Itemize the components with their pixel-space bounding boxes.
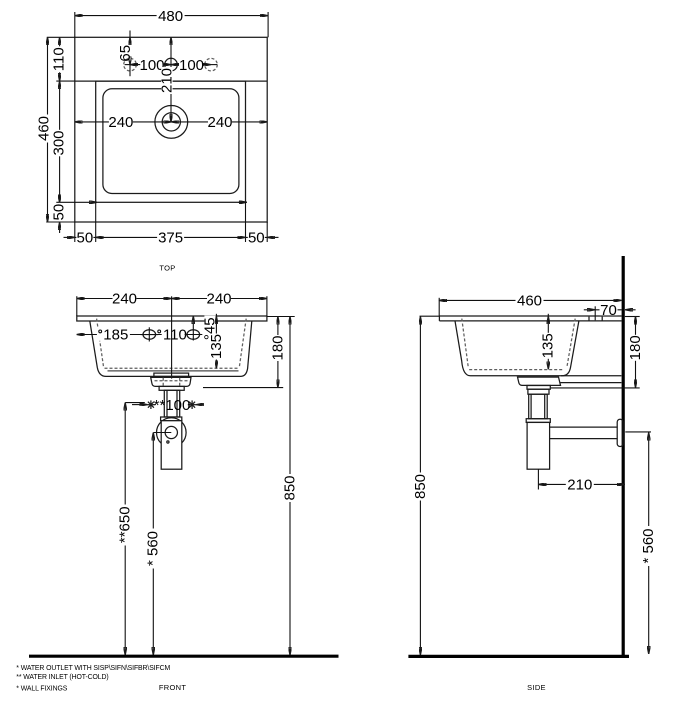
svg-text:* 560: * 560	[640, 528, 657, 563]
svg-text:SIDE: SIDE	[527, 683, 546, 692]
svg-text:460: 460	[517, 293, 542, 310]
svg-text:135: 135	[540, 333, 557, 358]
svg-text:**100: **100	[154, 397, 191, 414]
svg-text:* WALL FIXINGS: * WALL FIXINGS	[16, 686, 67, 693]
svg-text:180: 180	[627, 335, 644, 360]
svg-text:50: 50	[248, 230, 265, 247]
svg-text:TOP: TOP	[159, 264, 175, 273]
svg-text:50: 50	[50, 204, 67, 221]
svg-text:240: 240	[108, 114, 133, 131]
svg-text:70: 70	[600, 302, 617, 319]
svg-text:210: 210	[158, 68, 175, 93]
svg-text:* 560: * 560	[145, 531, 162, 566]
svg-text:FRONT: FRONT	[159, 683, 186, 692]
svg-text:135: 135	[208, 334, 225, 359]
svg-text:300: 300	[50, 130, 67, 155]
svg-text:50: 50	[77, 230, 94, 247]
svg-text:240: 240	[206, 291, 231, 308]
svg-text:100: 100	[179, 57, 204, 74]
svg-text:480: 480	[158, 8, 183, 25]
svg-text:240: 240	[207, 114, 232, 131]
svg-text:180: 180	[269, 335, 286, 360]
svg-text:850: 850	[412, 474, 429, 499]
svg-text:185: 185	[103, 327, 128, 344]
svg-text:240: 240	[112, 291, 137, 308]
svg-text:375: 375	[158, 230, 183, 247]
svg-text:850: 850	[281, 475, 298, 500]
svg-text:65: 65	[117, 45, 134, 62]
svg-text:110: 110	[163, 327, 187, 344]
svg-text:110: 110	[50, 47, 67, 71]
svg-text:** WATER INLET (HOT-COLD): ** WATER INLET (HOT-COLD)	[16, 674, 108, 681]
svg-text:* WATER OUTLET WITH SISP\SIFN: * WATER OUTLET WITH SISP\SIFN\SIFBR\SIFC…	[16, 665, 170, 672]
svg-text:210: 210	[567, 477, 592, 494]
svg-text:**650: **650	[117, 506, 134, 543]
